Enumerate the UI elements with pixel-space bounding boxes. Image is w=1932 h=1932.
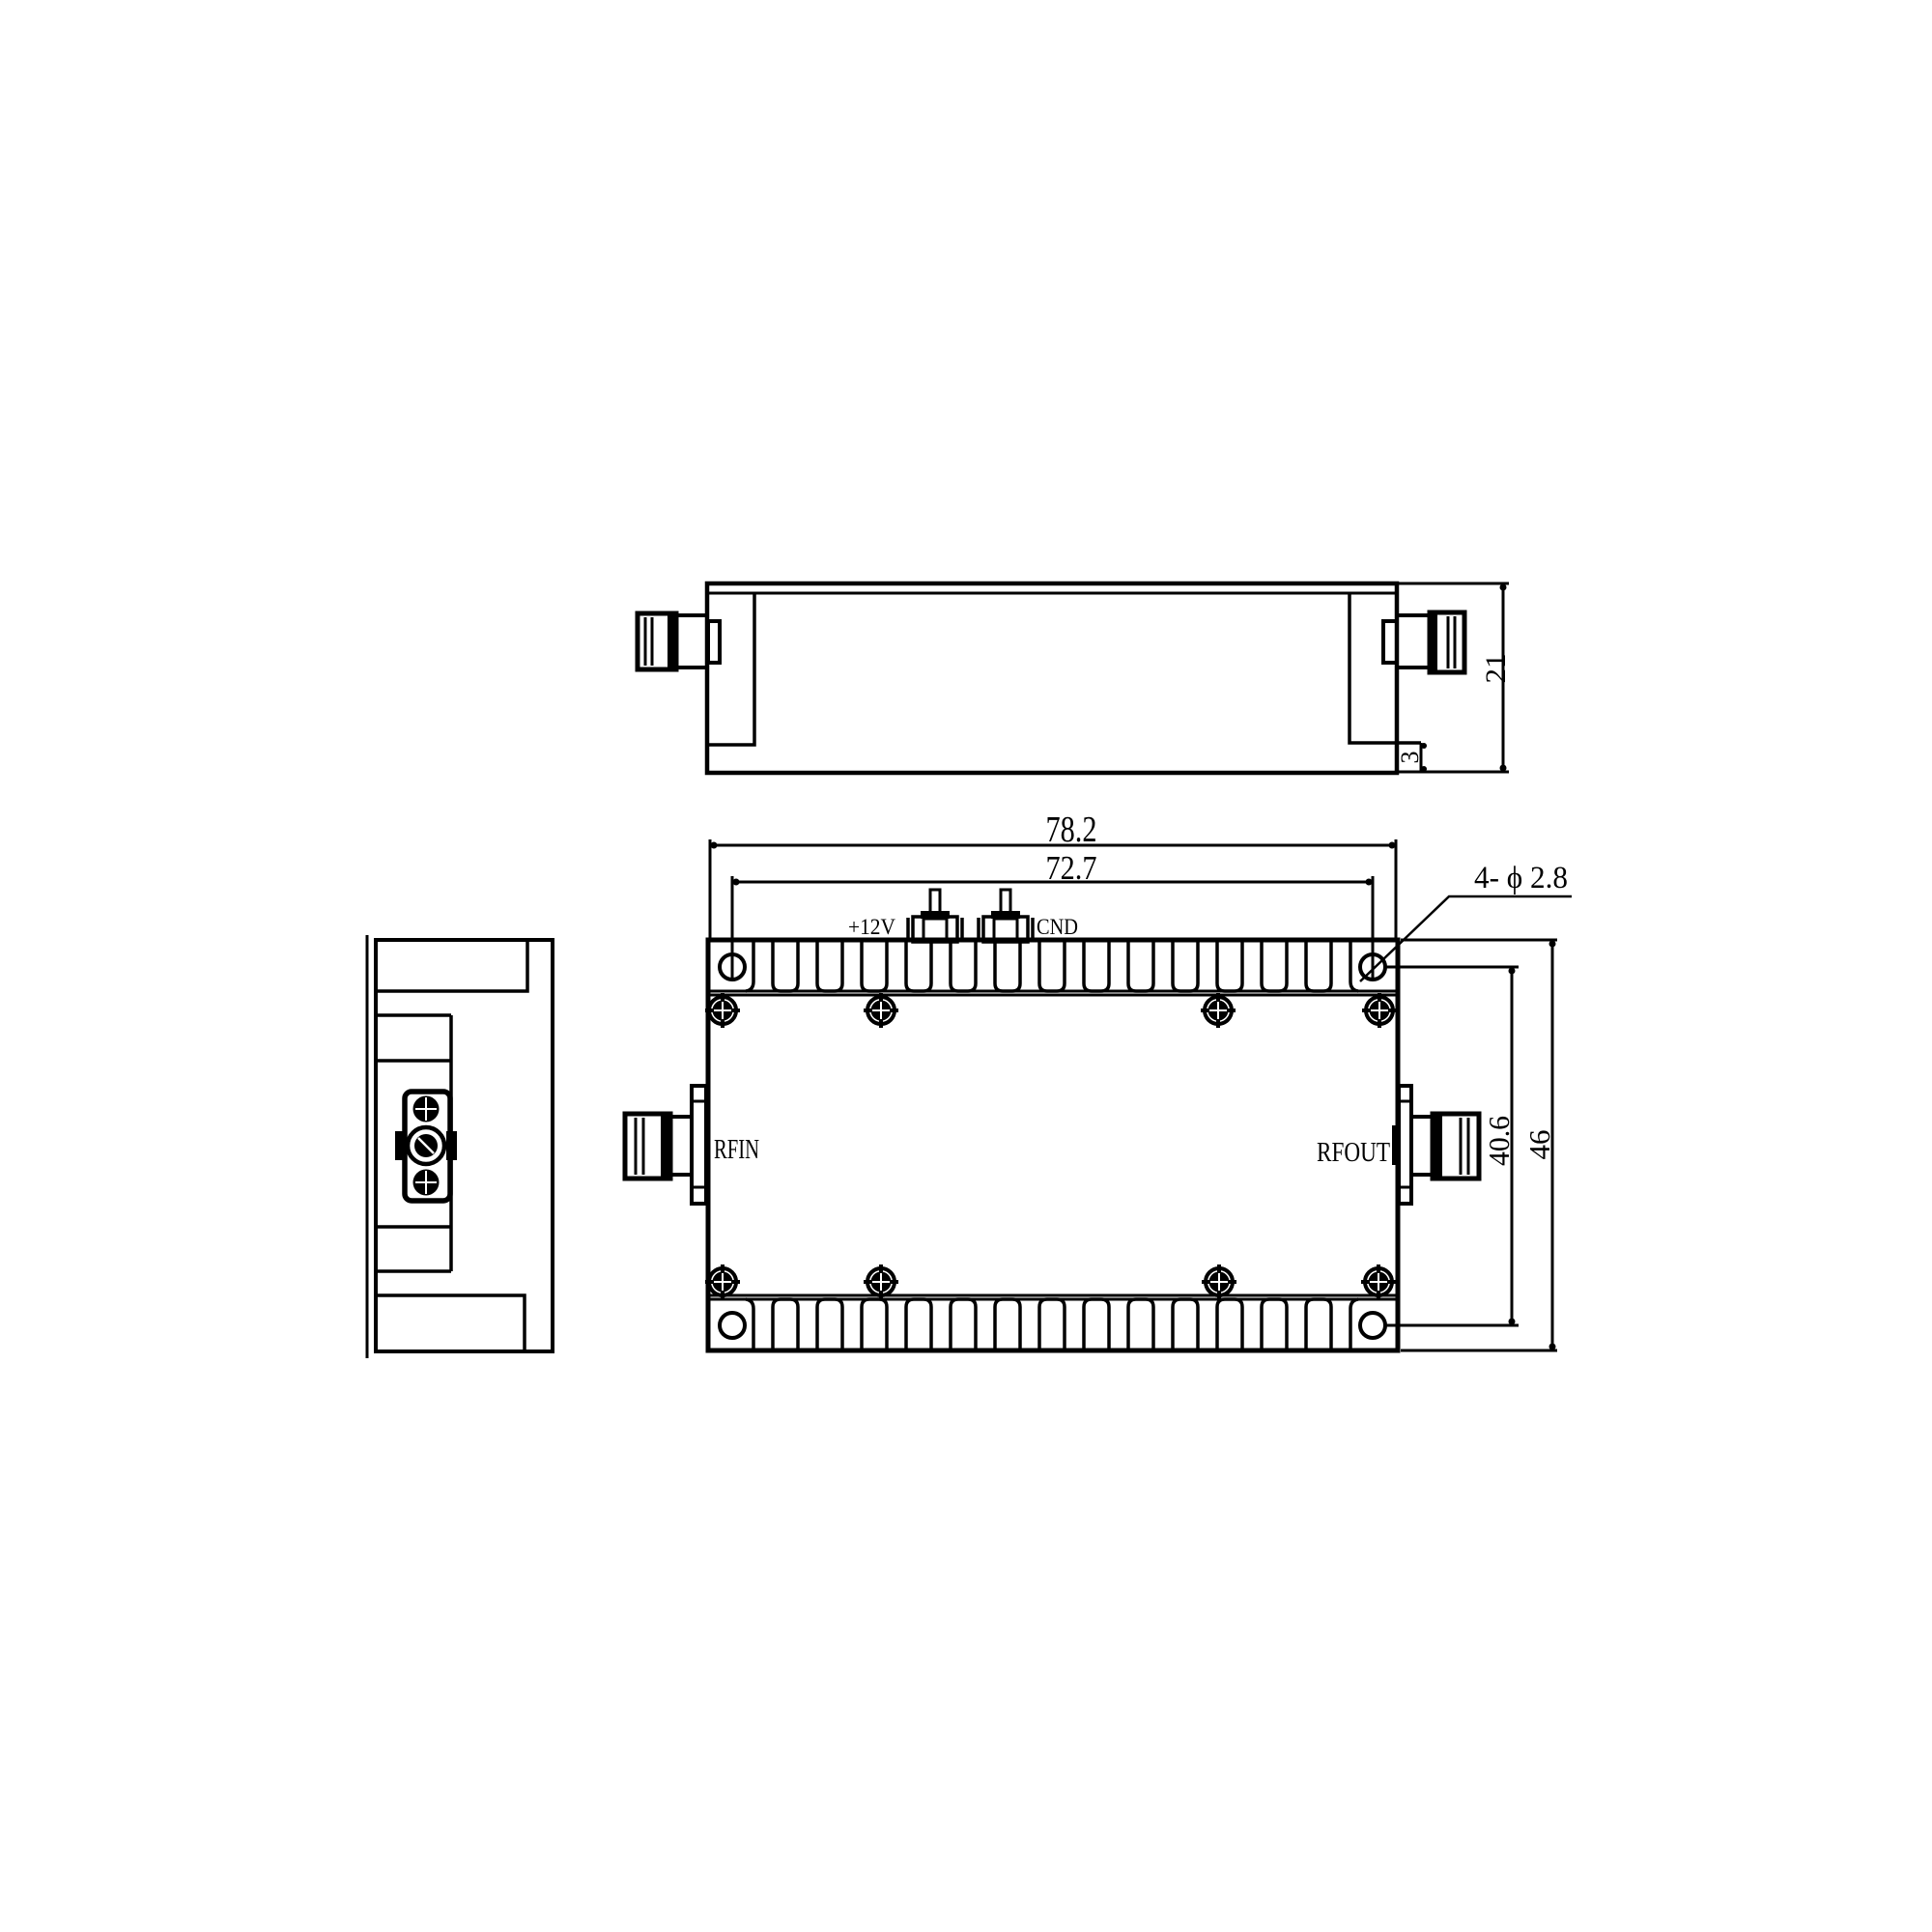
svg-text:CND: CND [1037,915,1078,939]
svg-text:21: 21 [1480,654,1512,684]
svg-text:46: 46 [1522,1130,1556,1160]
svg-text:4- ϕ 2.8: 4- ϕ 2.8 [1474,861,1568,895]
svg-text:78.2: 78.2 [1046,810,1097,850]
svg-text:40.6: 40.6 [1482,1116,1516,1166]
svg-text:RFIN: RFIN [714,1135,759,1165]
svg-text:RFOUT: RFOUT [1317,1138,1390,1168]
svg-text:+12V: +12V [848,915,895,939]
svg-text:72.7: 72.7 [1046,849,1097,887]
svg-text:3: 3 [1396,752,1424,764]
